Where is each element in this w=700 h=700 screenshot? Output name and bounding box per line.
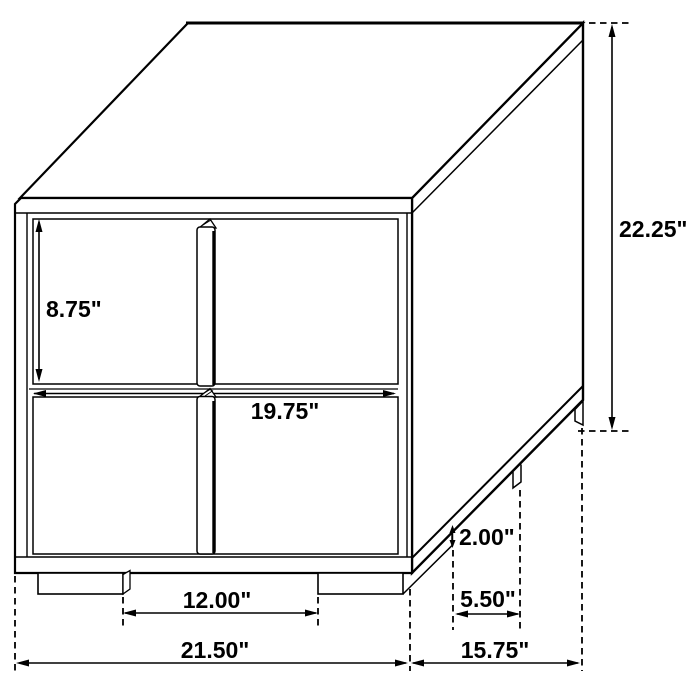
front-left-foot (38, 573, 123, 594)
dimension-overall-height: 22.25" (609, 24, 688, 430)
drawer-width-label: 19.75" (251, 398, 319, 424)
overall-width-label: 21.50" (181, 637, 249, 663)
dimension-leg-height: 2.00" (450, 524, 515, 550)
drawer-height-label: 8.75" (46, 296, 102, 322)
bottom-drawer-handle (197, 389, 216, 555)
front-left-foot-side (123, 571, 130, 595)
front-leg-spacing-label: 12.00" (183, 587, 251, 613)
overall-depth-label: 15.75" (461, 637, 529, 663)
overall-height-label: 22.25" (619, 216, 687, 242)
front-right-foot (318, 573, 403, 594)
side-leg-spacing-label: 5.50" (460, 586, 516, 612)
dimension-overall-depth: 15.75" (411, 637, 580, 667)
dimension-overall-width: 21.50" (16, 637, 408, 667)
dimension-diagram-page: 19.75" (0, 0, 700, 700)
top-drawer-handle (197, 219, 216, 386)
dimension-side-leg-spacing: 5.50" (455, 586, 520, 618)
nightstand-dimension-diagram: 19.75" (0, 0, 700, 700)
leg-height-label: 2.00" (459, 524, 515, 550)
drawer-handles (197, 219, 216, 554)
dimension-front-leg-spacing: 12.00" (123, 587, 318, 617)
